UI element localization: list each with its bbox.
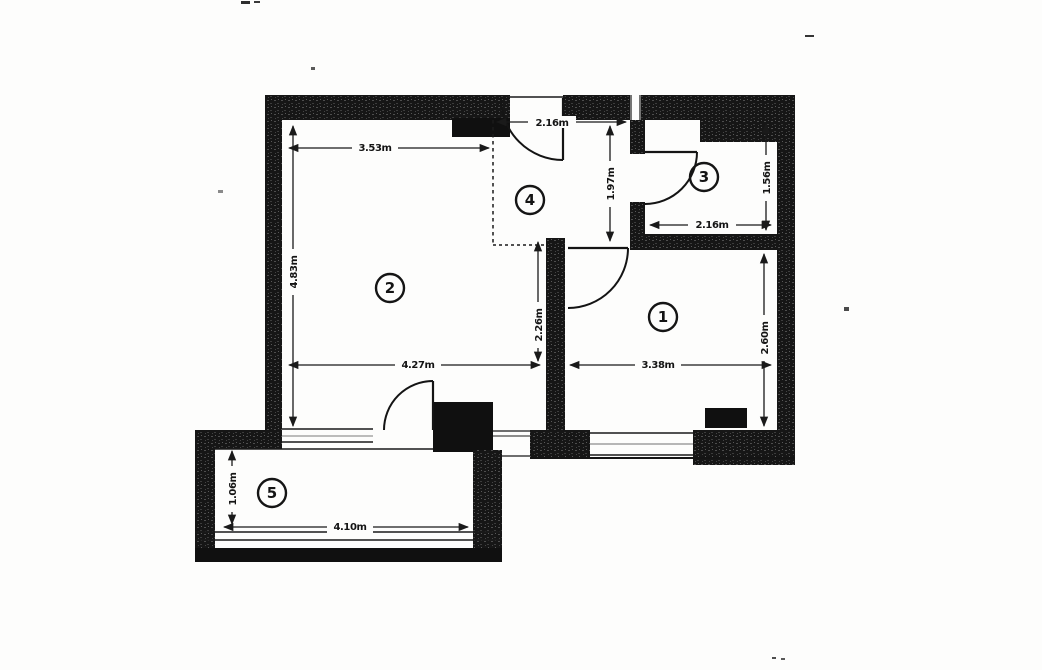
- dim-room1-depth: 2.60m: [760, 321, 771, 354]
- wall-room2-room1-divider: [546, 238, 565, 440]
- room-1-number: 1: [658, 308, 668, 326]
- wall-bottom-right-segment: [693, 430, 795, 465]
- scan-speck: [844, 307, 849, 311]
- shaft-gap: [630, 95, 641, 120]
- wall-shaft-room3-top: [700, 118, 788, 142]
- pier-balcony-junction: [433, 402, 493, 452]
- dim-room2-depth: 4.83m: [289, 255, 300, 288]
- dim-balcony-depth-group: 1.06m: [225, 466, 239, 512]
- dim-room1-depth-group: 2.60m: [757, 315, 771, 361]
- dim-room3-depth: 1.56m: [762, 161, 773, 194]
- wall-right: [777, 100, 795, 465]
- room-2-number: 2: [385, 279, 395, 297]
- scan-speck: [772, 657, 776, 659]
- scan-speck: [311, 67, 315, 70]
- wall-balcony-top: [195, 430, 282, 449]
- room1-door: [568, 248, 628, 308]
- dim-room1-width: 3.38m: [641, 360, 674, 371]
- room-2-badge: 2: [376, 274, 404, 302]
- floor-plan-drawing: 3.53m 2.16m 4.83m 1.97m 1.56m 2.16m 2.26…: [0, 0, 1042, 670]
- dim-hall-depth-group: 1.97m: [603, 161, 617, 207]
- room-5-number: 5: [267, 484, 277, 502]
- scan-speck: [241, 1, 250, 4]
- dim-inner-wall: 2.26m: [534, 308, 545, 341]
- scan-speck: [254, 1, 260, 3]
- scanned-floor-plan-page: 3.53m 2.16m 4.83m 1.97m 1.56m 2.16m 2.26…: [0, 0, 1042, 670]
- room-1-badge: 1: [649, 303, 677, 331]
- wall-top-right: [641, 95, 795, 120]
- wall-top-left: [265, 95, 510, 120]
- dim-room2-top-width: 3.53m: [358, 143, 391, 154]
- wall-room3-left-upper: [630, 118, 645, 154]
- room1-door-swing-arc: [568, 248, 628, 308]
- radiator-room1: [705, 408, 747, 428]
- room-3-number: 3: [699, 168, 709, 186]
- balcony-railing-band: [195, 548, 502, 562]
- dim-inner-wall-group: 2.26m: [531, 302, 545, 348]
- room-4-number: 4: [525, 191, 535, 209]
- scan-speck: [805, 35, 814, 37]
- dim-balcony-depth: 1.06m: [228, 472, 239, 505]
- room-4-badge: 4: [516, 186, 544, 214]
- dim-room3-depth-group: 1.56m: [759, 155, 773, 201]
- balcony-door-swing-arc: [384, 381, 433, 430]
- room-3-badge: 3: [690, 163, 718, 191]
- wall-balcony-left: [195, 433, 215, 560]
- entrance-door: [501, 98, 563, 160]
- wall-left: [265, 95, 282, 445]
- dim-entry-width: 2.16m: [535, 118, 568, 129]
- room-5-badge: 5: [258, 479, 286, 507]
- dim-room2-depth-group: 4.83m: [286, 249, 300, 295]
- balcony-door: [384, 381, 433, 430]
- dim-balcony-width: 4.10m: [333, 522, 366, 533]
- dim-room3-width: 2.16m: [695, 220, 728, 231]
- scan-speck: [781, 658, 785, 660]
- dim-room2-width: 4.27m: [401, 360, 434, 371]
- wall-room3-bottom: [630, 234, 777, 250]
- scan-speck: [218, 190, 223, 193]
- entrance-door-swing-arc: [501, 98, 563, 160]
- pier-top-wall-notch: [452, 118, 510, 137]
- wall-bottom-left-segment: [530, 430, 590, 458]
- wall-balcony-right: [473, 450, 502, 560]
- dim-hall-depth: 1.97m: [606, 167, 617, 200]
